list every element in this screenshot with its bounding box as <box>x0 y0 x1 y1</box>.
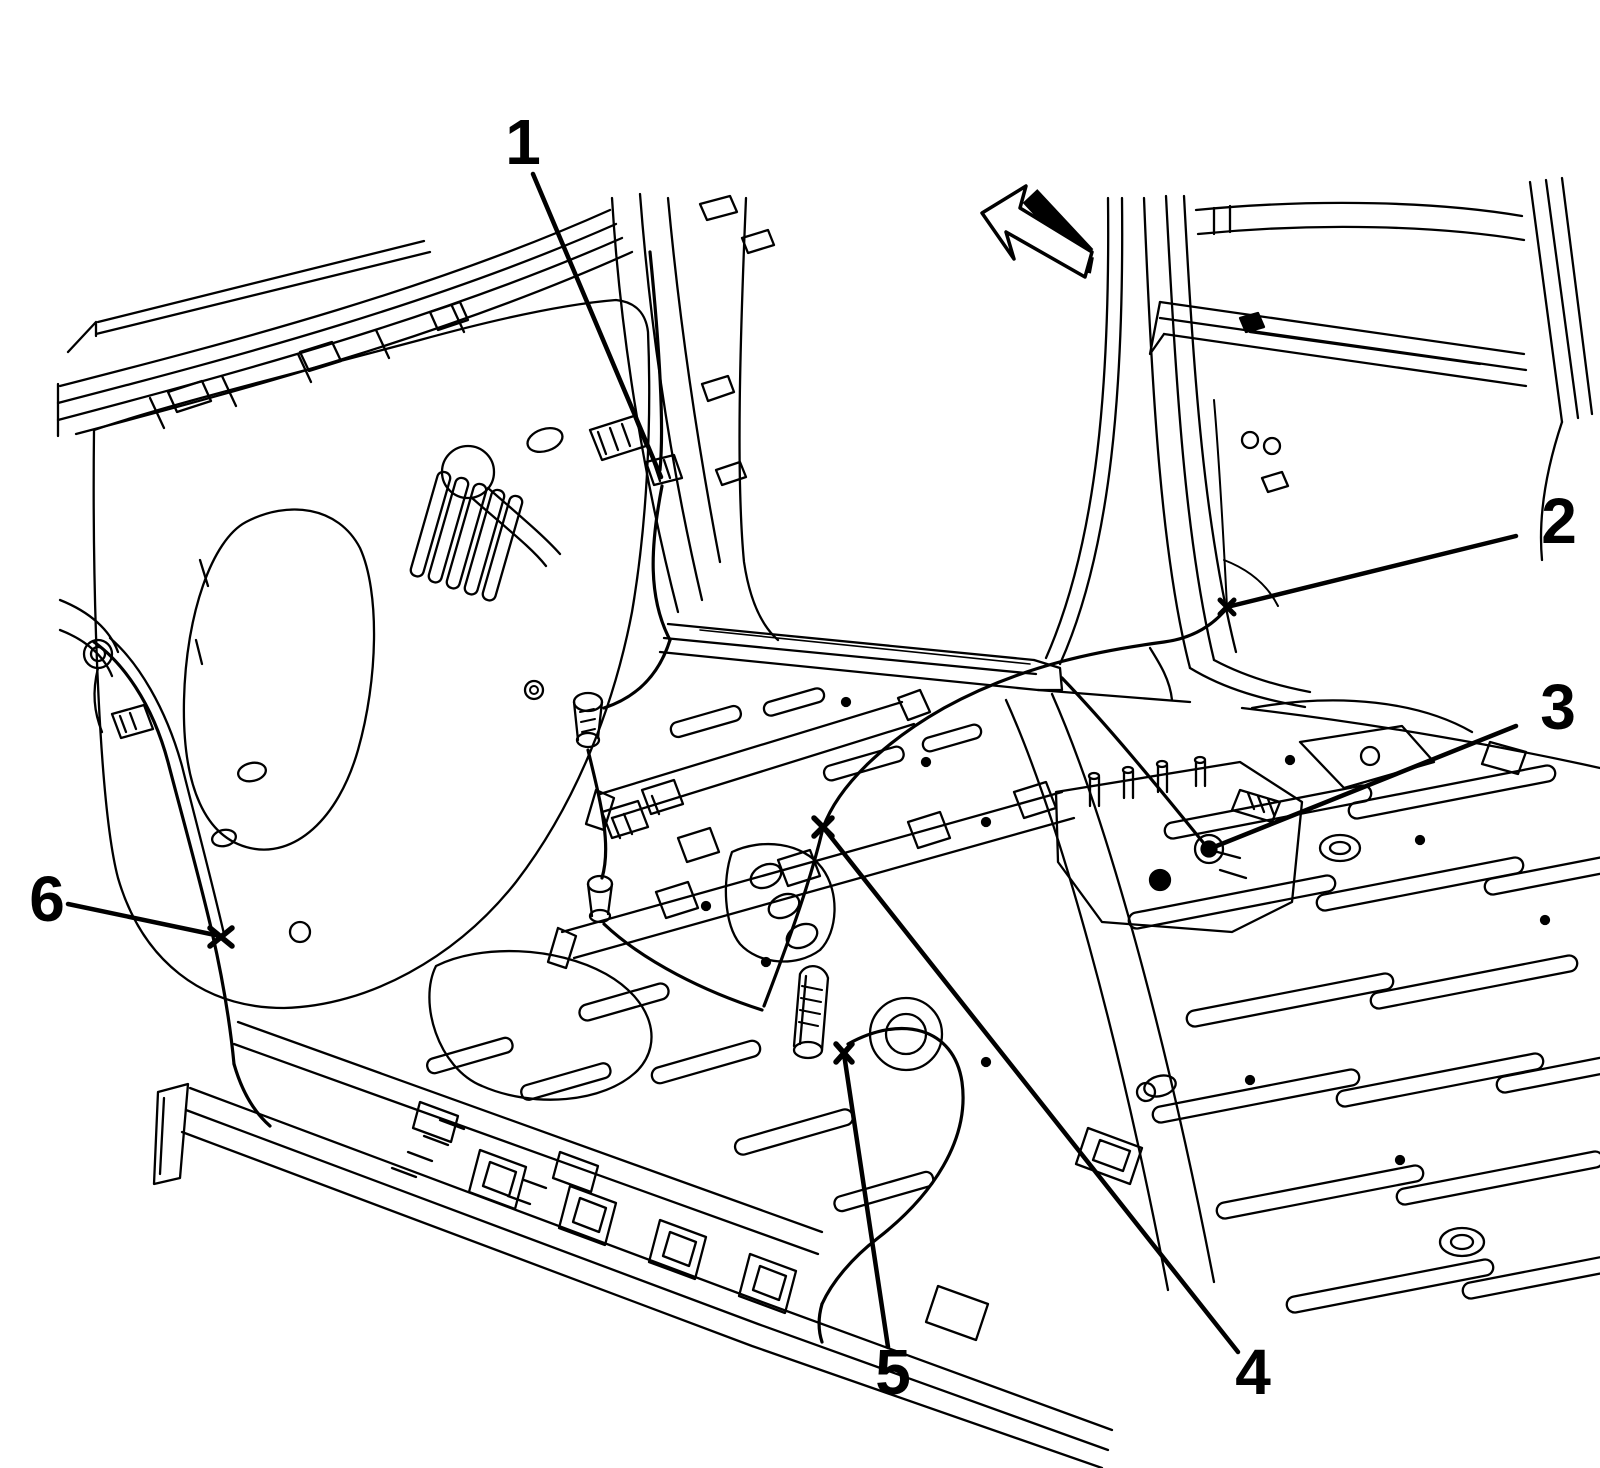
center-floor-structure <box>425 687 1074 1213</box>
callout-2-number: 2 <box>1541 485 1577 557</box>
seat-riser-bracket-cluster <box>1056 757 1302 932</box>
callout-4-number: 4 <box>1235 1336 1271 1408</box>
callout-1: 1 <box>505 106 661 477</box>
quarter-panel-bands <box>1150 178 1592 788</box>
callout-layer: 123456 <box>29 106 1577 1408</box>
rocker-rails <box>154 1022 1112 1468</box>
callout-6-leader-line <box>68 904 220 936</box>
hinge-pillar <box>590 194 778 640</box>
callout-2: 2 <box>1227 485 1577 607</box>
callout-3-leader-line <box>1209 726 1516 849</box>
callout-3-number: 3 <box>1540 671 1576 743</box>
cowl-rail-lines <box>58 210 632 436</box>
figure-canvas: 123456 <box>0 0 1600 1468</box>
body-structure-illustration: 123456 <box>0 0 1600 1468</box>
callout-5: 5 <box>844 1054 911 1408</box>
callout-1-number: 1 <box>505 106 541 178</box>
rear-floor-ribs <box>1006 694 1600 1314</box>
callout-6-number: 6 <box>29 863 65 935</box>
callout-5-number: 5 <box>875 1336 911 1408</box>
left-harness <box>60 600 270 1126</box>
callout-4: 4 <box>823 827 1271 1408</box>
front-direction-arrow-icon <box>982 186 1092 277</box>
callout-2-leader-line <box>1227 536 1516 607</box>
